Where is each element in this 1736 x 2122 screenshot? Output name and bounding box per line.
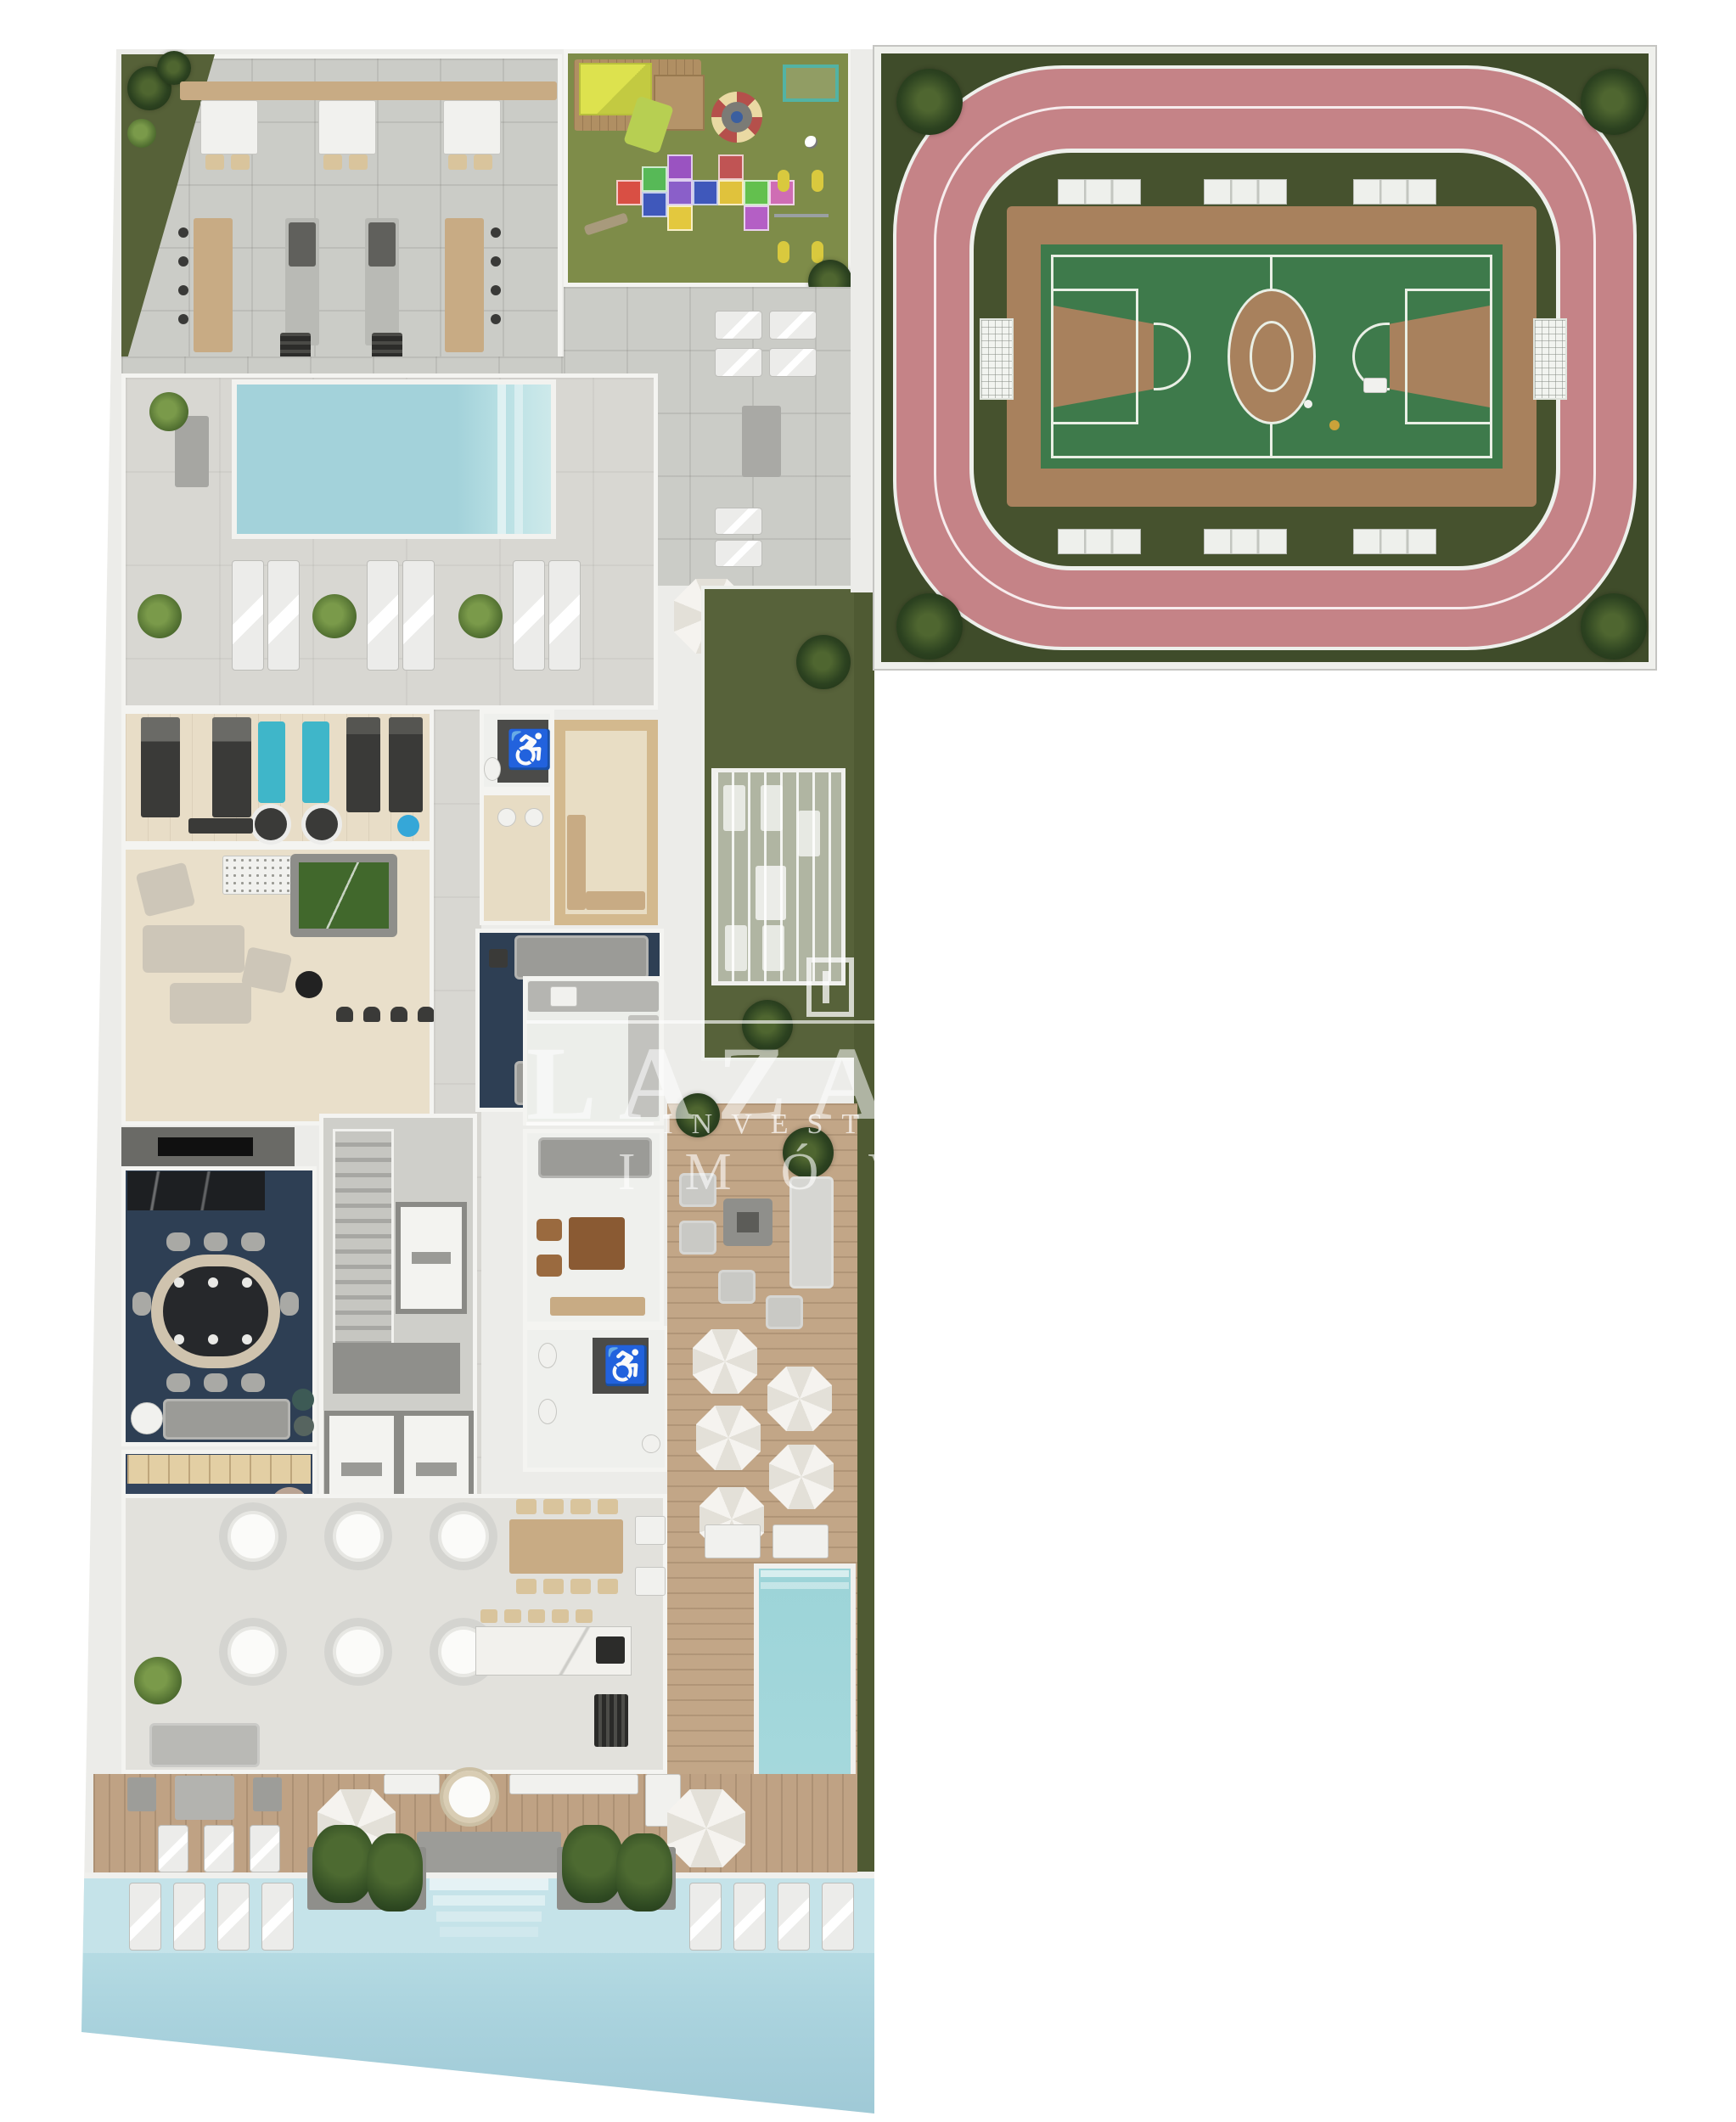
coffee-table-wood [569,1217,625,1270]
palm-icon [1581,593,1647,660]
stair-landing [333,1343,460,1394]
fitness-station [812,170,823,192]
pool-lounger [513,560,545,671]
pergola-lounger [762,925,784,971]
sun-chair [769,311,817,340]
deck-armchair [718,1270,756,1304]
bar-stool [491,227,501,238]
side-table [489,949,508,968]
deck-bench [384,1774,440,1794]
dining-chair [166,1232,190,1251]
in-pool-lounger [173,1883,205,1951]
party-round-table [430,1502,497,1570]
rope-daybed [443,1771,496,1823]
mini-goal [783,65,839,102]
carousel-hub [731,111,743,123]
terrace-chair [448,154,467,170]
deck-lounger [204,1825,234,1872]
penalty-box-right [1405,289,1490,424]
deck-bench [509,1774,638,1794]
terrace-chair [205,154,224,170]
wheelchair-icon: ♿ [603,1348,649,1385]
deck-lounger [250,1825,280,1872]
terrace-chair [323,154,342,170]
court-bench [1353,179,1436,205]
party-chair [543,1579,564,1594]
fitness-station [778,241,789,263]
party-round-table [219,1502,287,1570]
in-pool-lounger [733,1883,766,1951]
fitness-station [812,241,823,263]
sun-chair [715,540,762,567]
reading-sofa [538,1137,652,1178]
treadmill [212,717,251,817]
plate [174,1334,184,1344]
soccer-ball-icon [805,136,817,149]
hopscotch-tile [693,180,718,205]
dining-table-oval [151,1255,280,1368]
in-pool-lounger [778,1883,810,1951]
bar-stool [178,256,188,267]
bar-stool [491,256,501,267]
dining-chair [204,1373,228,1392]
kitchen-sink [550,986,577,1007]
service-elevator [396,1202,467,1314]
pergola-lounger [725,925,747,971]
sports-block [874,47,1655,669]
pergola-lounger [761,785,783,831]
lap-pool-steps [497,385,506,534]
hopscotch-tile [667,180,693,205]
yoga-mat [302,721,329,803]
sink [642,1434,660,1453]
sun-chair [715,348,762,377]
dartboard-panel [222,856,292,895]
deck-armchair [766,1295,803,1329]
palm-icon [742,1000,793,1051]
toilet [538,1343,557,1368]
hopscotch-tile [667,154,693,180]
lounge-armchair [170,983,251,1024]
goal-left [980,318,1014,400]
side-table-round [131,1402,163,1434]
bar-stool [491,314,501,324]
party-wood-table [509,1519,623,1574]
hopscotch-tile [744,180,769,205]
staircase [333,1129,394,1348]
party-chair [516,1499,537,1514]
fitness-bar [774,214,829,217]
in-pool-lounger [822,1883,854,1951]
jacuzzi-steps [761,1582,849,1589]
terrace-table [200,100,258,154]
court-equipment [1363,378,1387,393]
party-round-table [324,1618,392,1686]
deck-lounger [158,1825,188,1872]
jacuzzi-steps [761,1570,849,1577]
party-round-table [219,1618,287,1686]
sideboard [550,1297,645,1316]
palm-icon [896,593,963,660]
pool-steps [433,1895,545,1906]
daybed-canopy [705,1524,761,1558]
hopscotch-tile [718,180,744,205]
party-round-table [324,1502,392,1570]
treadmill [141,717,180,817]
deck-sofa [789,1176,834,1288]
stool [418,1007,435,1022]
massage-table [742,406,781,477]
dining-chair [241,1373,265,1392]
wheelchair-icon: ♿ [506,732,553,769]
black-pouf [295,971,323,998]
goal-right [1533,318,1567,400]
kitchen-column [628,1015,659,1117]
hopscotch-tile [718,154,744,180]
pool-steps [440,1927,538,1937]
party-chair [570,1579,591,1594]
in-pool-lounger [689,1883,722,1951]
dividing-wall [851,49,874,592]
changing-room [480,791,554,925]
penalty-box-left [1053,289,1138,424]
elliptical-machine [346,717,380,812]
palm-icon [796,635,851,689]
palm-icon [1581,69,1647,135]
party-sofa [149,1723,260,1767]
screenshot-root: { "watermark": { "logo_icon": "square-fr… [0,0,1736,2122]
in-pool-lounger [129,1883,161,1951]
plate [242,1334,252,1344]
island-stool [576,1609,593,1623]
party-armchair [635,1567,666,1596]
plate [242,1277,252,1288]
terrace-table [318,100,376,154]
party-chair [598,1579,618,1594]
toilet [484,757,501,781]
bar-stool [178,227,188,238]
terrace-chair [349,154,368,170]
fitness-station [778,170,789,192]
party-chair [543,1499,564,1514]
court-bench [1058,529,1141,554]
terrace-chair [474,154,492,170]
in-pool-lounger [217,1883,250,1951]
bar-stool [491,285,501,295]
deck-armchair [679,1173,716,1207]
pool-lounger [232,560,264,671]
daybed-canopy [772,1524,829,1558]
court-bench [1058,179,1141,205]
elliptical-machine [389,717,423,812]
deck-armchair [679,1221,716,1255]
palm-icon [896,69,963,135]
dining-chair [280,1292,299,1316]
patio-umbrella-icon [667,1789,745,1867]
pool-lounger [548,560,581,671]
hopscotch-tile [616,180,642,205]
in-pool-lounger [261,1883,294,1951]
island-stool [504,1609,521,1623]
patio-umbrella-icon [696,1406,761,1470]
island-stool [528,1609,545,1623]
sauna-bench [567,815,586,910]
bbq-island-counter [194,218,233,352]
grill-tools [594,1694,628,1747]
grill-cooktop [289,222,316,267]
shrub-icon [458,594,503,638]
tv-sofa [514,935,649,980]
sun-chair [715,311,762,340]
sauna-bench [586,891,645,910]
pergola-lounger [723,785,745,831]
hopscotch-tile [642,192,667,217]
pergola-table [756,866,786,920]
party-armchair [635,1516,666,1545]
armchair-wood [537,1219,562,1241]
deck-pouf [127,1777,156,1811]
pool-lounger [367,560,399,671]
dining-chair [132,1292,151,1316]
sun-chair [769,348,817,377]
stool [390,1007,407,1022]
island-stool [552,1609,569,1623]
sun-chair [715,508,762,535]
billiards-felt [299,862,389,929]
court-bench [1204,529,1287,554]
lap-pool-steps [514,385,523,534]
plate [208,1277,218,1288]
pool-lounger [267,560,300,671]
pouf [294,1416,314,1436]
bbq-island-counter [445,218,484,352]
court-center-circle [1250,321,1294,392]
island-stool [480,1609,497,1623]
shrub-icon [312,594,357,638]
pool-steps-mat [417,1832,561,1872]
pool-steps [430,1878,548,1890]
stool [363,1007,380,1022]
palm-icon [157,51,191,85]
lounge-sofa [143,925,244,973]
exercise-wheel [306,808,338,840]
palm-icon [783,1127,834,1178]
pergola-lounger [798,811,820,856]
shrub-icon [149,392,188,431]
ball-icon [1329,420,1340,430]
indoor-plant [134,1657,182,1704]
patio-umbrella-icon [693,1329,757,1394]
hopscotch-tile [667,205,693,231]
shrub-icon [138,594,182,638]
watermark-rule-right [1146,1122,1273,1126]
pool-steps [436,1911,542,1922]
patio-umbrella-icon [767,1367,832,1431]
plate [208,1334,218,1344]
sink [497,808,516,827]
shrub-icon [127,119,156,148]
yoga-mat [258,721,285,803]
planter-palm-icon [562,1825,623,1903]
island-cooktop [596,1636,625,1664]
pool-lounger [402,560,435,671]
court-bench [1204,179,1287,205]
toilet [538,1399,557,1424]
party-chair [598,1499,618,1514]
dumbbell-rack [188,818,253,834]
exercise-ball [397,815,419,837]
deck-rug [175,1776,234,1820]
armchair-wood [537,1255,562,1277]
terrace-chair [231,154,250,170]
bar-stool [178,314,188,324]
party-chair [570,1499,591,1514]
plate [174,1277,184,1288]
hopscotch-tile [642,166,667,192]
tv-screen [158,1137,253,1156]
ball-icon [1304,400,1312,408]
palm-icon [676,1093,720,1137]
patio-umbrella-icon [769,1445,834,1509]
sink [525,808,543,827]
dining-sofa [163,1399,290,1440]
exercise-wheel [255,808,287,840]
kitchen-counter [528,981,659,1012]
dining-chair [204,1232,228,1251]
terrace-wood-counter [180,81,557,100]
pouf [292,1389,314,1411]
grill-cooktop [368,222,396,267]
party-chair [516,1579,537,1594]
planter-palm-icon [312,1825,374,1903]
court-bench [1353,529,1436,554]
bar-counter-marble [127,1171,265,1210]
bar-stool [178,285,188,295]
fire-pit-slot [737,1212,759,1232]
hopscotch-tile [744,205,769,231]
dining-chair [241,1232,265,1251]
terrace-table [443,100,501,154]
planter-palm-icon [367,1833,423,1911]
lap-pool [232,379,556,539]
planter-palm-icon [616,1833,672,1911]
deck-pouf [253,1777,282,1811]
dining-chair [166,1373,190,1392]
stool [336,1007,353,1022]
kids-shelf [127,1455,311,1484]
